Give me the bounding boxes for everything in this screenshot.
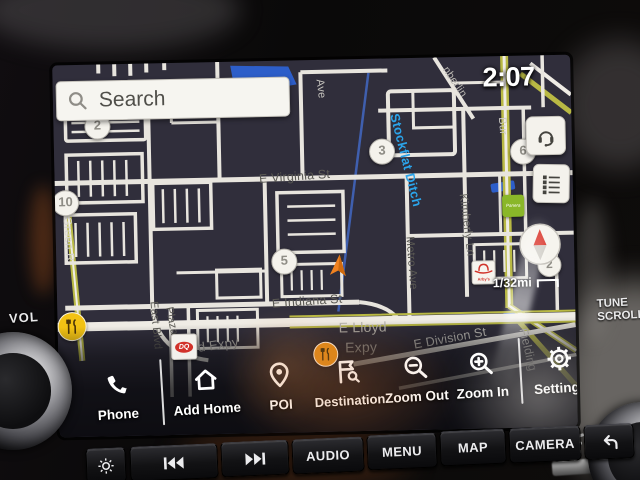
- menu-item-phone[interactable]: Phone: [95, 369, 139, 423]
- voice-assistant-button[interactable]: [525, 116, 566, 156]
- menu-label: Phone: [97, 406, 139, 423]
- search-placeholder: Search: [99, 87, 166, 112]
- arbys-label: Arby's: [473, 276, 495, 281]
- next-track-button[interactable]: [220, 440, 289, 478]
- previous-track-icon: [161, 454, 188, 471]
- phone-icon: [101, 369, 133, 401]
- search-input[interactable]: Search: [55, 76, 290, 121]
- menu-label: POI: [266, 396, 297, 413]
- menu-item-zoom-in[interactable]: Zoom In: [454, 347, 509, 402]
- menu-label: Destination: [314, 391, 386, 410]
- back-button[interactable]: [583, 423, 634, 460]
- infotainment-dashboard: E Virginia St E Indiana St Metro Ave Kim…: [0, 0, 640, 480]
- menu-label: Zoom In: [456, 384, 509, 402]
- next-track-icon: [242, 450, 269, 467]
- flag-search-icon: [332, 355, 364, 387]
- arbys-hat-icon: [473, 261, 493, 274]
- camera-button[interactable]: CAMERA: [508, 425, 581, 463]
- menu-item-destination[interactable]: Destination: [312, 354, 386, 410]
- clock: 2:07: [482, 61, 535, 93]
- scale-label: 1/32mi: [493, 275, 532, 290]
- menu-divider: [159, 359, 165, 425]
- home-icon: [190, 364, 222, 396]
- menu-item-add-home[interactable]: Add Home: [171, 363, 241, 419]
- list-icon: [539, 170, 563, 196]
- list-button[interactable]: [532, 164, 570, 204]
- scale-bracket: [536, 276, 560, 288]
- map-button[interactable]: MAP: [439, 429, 506, 467]
- menu-item-settings[interactable]: Settings: [531, 342, 577, 397]
- menu-button[interactable]: MENU: [366, 432, 437, 470]
- panera-poi-logo[interactable]: Panera: [502, 195, 524, 217]
- utensils-icon: [64, 319, 79, 334]
- menu-label: Add Home: [173, 400, 241, 419]
- menu-item-zoom-out[interactable]: Zoom Out: [382, 350, 449, 406]
- tune-scroll-label: TUNE SCROLL: [596, 296, 640, 324]
- previous-track-button[interactable]: [129, 443, 218, 480]
- touchscreen[interactable]: E Virginia St E Indiana St Metro Ave Kim…: [52, 55, 578, 438]
- map-pin-icon: [264, 359, 296, 391]
- magnifier-icon: [67, 90, 89, 112]
- tune-label-line2: SCROLL: [597, 309, 640, 324]
- sun-icon: [97, 456, 116, 475]
- glare: [0, 0, 240, 50]
- zoom-in-icon: [465, 347, 497, 379]
- back-arrow-icon: [598, 431, 621, 452]
- menu-label: Settings: [534, 379, 578, 397]
- menu-label: Zoom Out: [385, 387, 450, 406]
- glare: [30, 185, 56, 295]
- zoom-out-icon: [399, 351, 431, 383]
- compass-button[interactable]: [519, 223, 562, 271]
- audio-button[interactable]: AUDIO: [291, 436, 364, 474]
- map-scale: 1/32mi: [493, 275, 560, 290]
- menu-divider: [518, 338, 524, 404]
- headset-icon: [532, 122, 559, 149]
- volume-label: VOL: [9, 309, 40, 326]
- current-position-arrow: [324, 251, 353, 284]
- gear-icon: [543, 343, 575, 375]
- display-button[interactable]: [85, 447, 126, 480]
- menu-item-poi[interactable]: POI: [264, 359, 297, 413]
